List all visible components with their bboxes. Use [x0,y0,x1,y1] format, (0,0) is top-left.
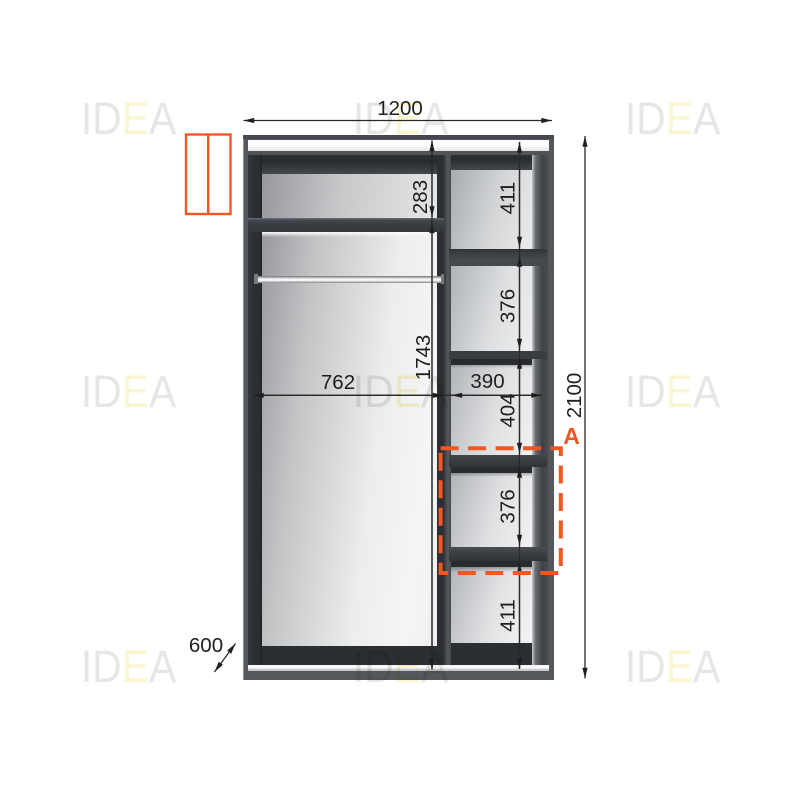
svg-text:762: 762 [321,371,355,394]
svg-text:411: 411 [497,182,520,215]
svg-text:411: 411 [497,599,520,632]
svg-text:376: 376 [497,489,520,523]
svg-text:283: 283 [409,180,432,214]
svg-text:404: 404 [497,393,520,427]
svg-text:376: 376 [497,289,520,323]
svg-text:600: 600 [189,634,223,657]
svg-text:A: A [563,423,580,449]
svg-text:2100: 2100 [563,373,586,419]
svg-text:390: 390 [470,370,504,393]
